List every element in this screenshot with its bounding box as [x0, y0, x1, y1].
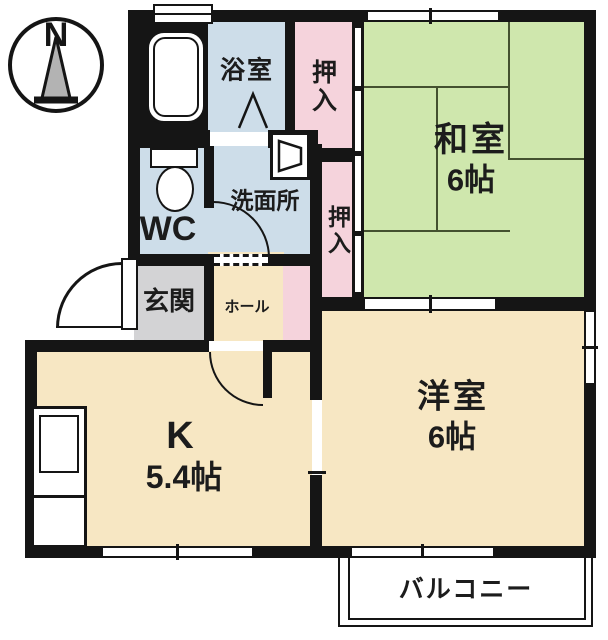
toilet-tank [150, 148, 198, 168]
label-japanese-room: 和室 [434, 123, 508, 157]
bath-door-mark [236, 90, 270, 130]
sliding-door-tick [355, 231, 361, 236]
tatami-line [362, 230, 510, 232]
compass: N [8, 8, 108, 116]
label-entrance: 玄関 [143, 288, 195, 314]
label-western-room: 洋室 [417, 380, 489, 413]
wall-bath-bottom [134, 130, 210, 148]
wall-kitchen-top-left [25, 340, 209, 352]
wall-washroom-bottom [268, 254, 322, 266]
washing-machine-pan [270, 132, 310, 180]
washing-machine-icon [273, 135, 307, 177]
window-tick [582, 346, 598, 349]
entrance-threshold-line [56, 326, 124, 328]
wall-right [584, 10, 596, 558]
tatami-line [508, 22, 510, 160]
window-tick [429, 8, 432, 24]
window-japanese-top [368, 12, 498, 20]
tatami-line [436, 86, 438, 232]
label-closet-top: 押入 [310, 59, 335, 115]
wall-wc-washroom [204, 144, 214, 208]
wall-kitchen-top-right [263, 340, 317, 352]
label-wc: WC [140, 212, 197, 246]
label-kitchen-size: 5.4帖 [146, 461, 223, 493]
window-bathroom-divider [155, 13, 211, 15]
label-hall: ホール [224, 300, 269, 315]
label-western-size: 6帖 [428, 422, 476, 453]
kitchen-counter-divider [34, 495, 84, 498]
wall-entrance-hall [204, 266, 214, 344]
label-washroom: 洗面所 [231, 190, 300, 213]
door-gap-hall-kitchen [209, 341, 263, 351]
window-tick [429, 295, 432, 313]
door-gap-bathroom [210, 132, 268, 146]
toilet-bowl [156, 166, 194, 212]
door-tick [308, 471, 326, 474]
window-tick [176, 544, 179, 560]
door-gap-kitchen-western [312, 400, 322, 475]
wall-kitchen-western-lower [310, 475, 322, 546]
kitchen-sink [39, 415, 79, 473]
wall-kitchen-western-upper [310, 144, 322, 400]
door-arc-entrance [56, 262, 122, 328]
wall-hall-stub [263, 352, 272, 398]
bathtub [146, 30, 206, 124]
label-japanese-size: 6帖 [447, 165, 495, 196]
label-balcony: バルコニー [399, 578, 534, 603]
sliding-door-track [355, 28, 361, 292]
label-closet-middle: 押入 [326, 205, 349, 257]
floor-plan: N 浴室 押入 和室 6帖 洗面所 押入 WC 玄関 ホール K 5.4帖 洋室… [0, 0, 608, 640]
wall-bath-closet [285, 16, 295, 148]
sliding-door-tick [355, 151, 361, 156]
sliding-door-tick [355, 86, 361, 91]
label-bathroom: 浴室 [220, 59, 274, 84]
entrance-door-leaf [121, 258, 138, 330]
bathtub-inner-line [153, 37, 199, 117]
label-kitchen: K [166, 417, 193, 455]
kitchen-counter [31, 406, 87, 548]
tatami-line [508, 158, 586, 160]
wall-wc-entrance [128, 254, 214, 266]
